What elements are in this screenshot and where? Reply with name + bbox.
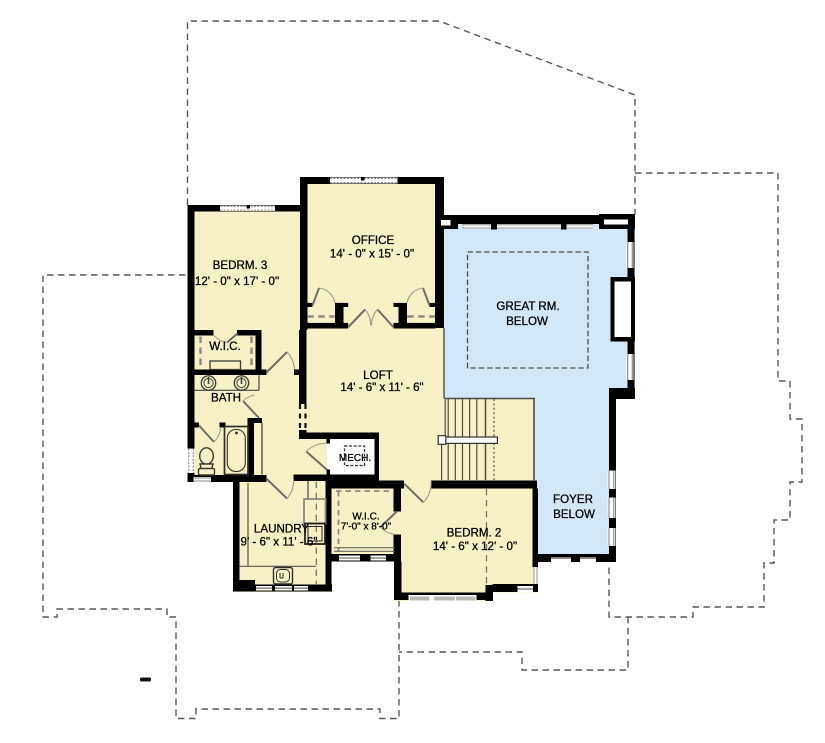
svg-text:OFFICE: OFFICE <box>352 234 395 247</box>
svg-text:14' - 6" x 11' - 6": 14' - 6" x 11' - 6" <box>340 381 423 394</box>
svg-text:BEDRM. 2: BEDRM. 2 <box>447 527 502 540</box>
svg-text:BEDRM. 3: BEDRM. 3 <box>213 259 268 272</box>
svg-text:14' - 0" x 15' - 0": 14' - 0" x 15' - 0" <box>330 248 414 261</box>
svg-text:GREAT RM.: GREAT RM. <box>496 300 559 313</box>
svg-text:9' - 6" x 11' - 6": 9' - 6" x 11' - 6" <box>241 536 318 549</box>
svg-text:BELOW: BELOW <box>506 315 548 328</box>
svg-text:BELOW: BELOW <box>553 508 595 521</box>
svg-text:14' - 6" x 12' - 0": 14' - 6" x 12' - 0" <box>433 540 517 553</box>
svg-text:FOYER: FOYER <box>553 493 593 506</box>
svg-text:W.I.C.: W.I.C. <box>209 340 241 353</box>
svg-text:BATH: BATH <box>211 392 241 405</box>
svg-text:12' - 0" x 17' - 0": 12' - 0" x 17' - 0" <box>195 275 279 288</box>
svg-text:MECH.: MECH. <box>339 453 371 464</box>
svg-text:LAUNDRY: LAUNDRY <box>254 523 309 536</box>
svg-text:7'-0" x 8'-0": 7'-0" x 8'-0" <box>341 522 392 533</box>
